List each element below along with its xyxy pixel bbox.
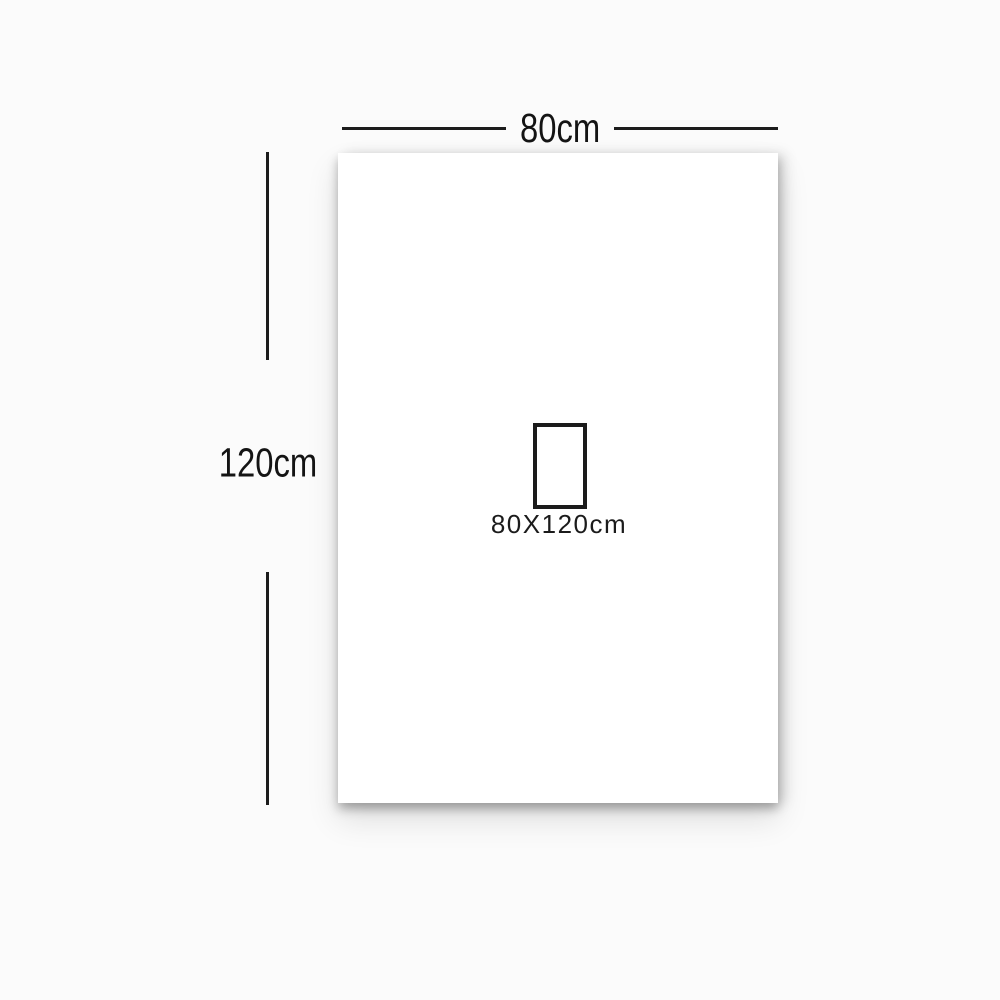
size-diagram: 80cm 120cm 80X120cm (0, 0, 1000, 1000)
width-dimension-line-right (614, 127, 778, 130)
height-dimension-line-bottom (266, 572, 269, 805)
size-callout-rectangle (533, 423, 587, 509)
width-dimension: 80cm (342, 106, 778, 150)
width-dimension-line-left (342, 127, 506, 130)
width-dimension-label: 80cm (520, 108, 600, 149)
size-callout-label: 80X120cm (491, 511, 627, 537)
height-dimension-label: 120cm (219, 443, 317, 484)
height-dimension-line-top (266, 152, 269, 360)
